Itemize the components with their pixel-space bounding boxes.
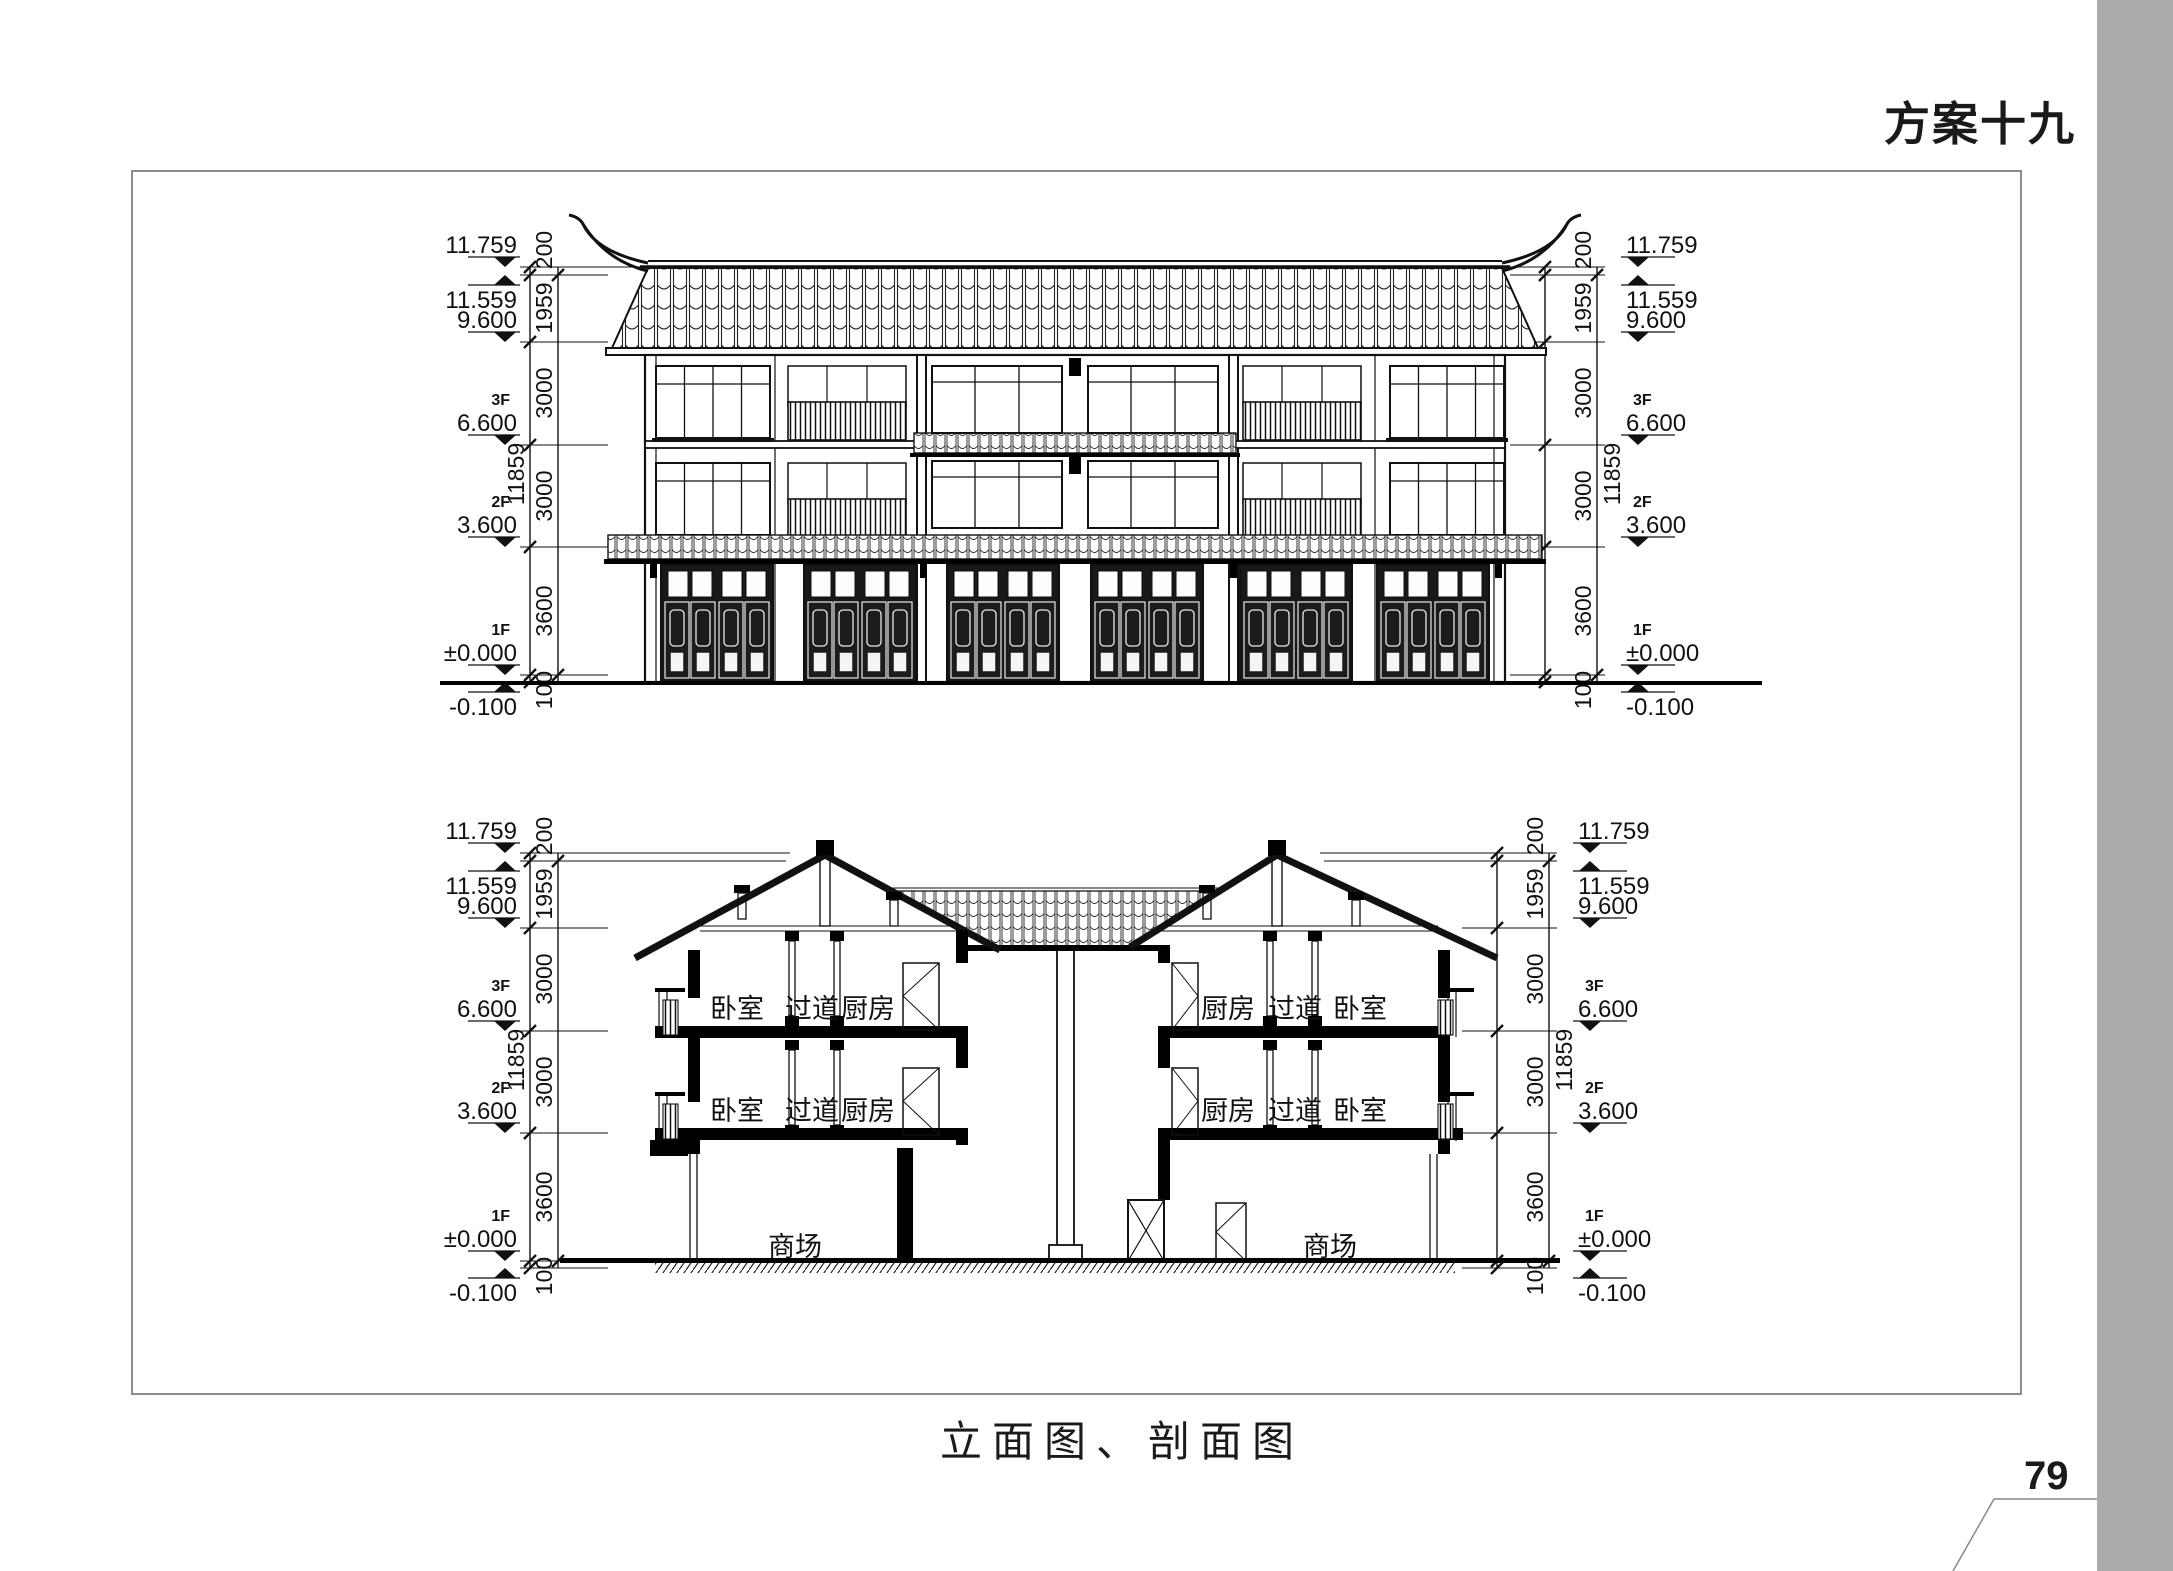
- room-label: 厨房: [841, 1096, 895, 1126]
- room-label: 过道: [1268, 994, 1322, 1024]
- room-label: 过道: [785, 1096, 839, 1126]
- room-label: 商场: [768, 1232, 822, 1262]
- room-label: 卧室: [710, 994, 764, 1024]
- room-label: 厨房: [1201, 994, 1255, 1024]
- architectural-drawings: 11.759 11.559 9.600 3F 6.600 2F 3.600 1F…: [0, 0, 2173, 1571]
- main-roof: [612, 268, 1538, 348]
- room-label: 厨房: [1201, 1096, 1255, 1126]
- ground-line: [440, 681, 1762, 685]
- center-column: [1057, 951, 1074, 1245]
- storefront-canopy: [608, 535, 1542, 559]
- room-label: 厨房: [841, 994, 895, 1024]
- page-corner-line: [1953, 1499, 2097, 1571]
- ground-line: [560, 1258, 1560, 1263]
- room-label: 卧室: [1333, 994, 1387, 1024]
- book-page: { "page": { "title": "方案十九", "caption": …: [0, 0, 2173, 1571]
- left-eave-curl: [569, 215, 648, 271]
- section-drawing: 卧室 过道 厨房 卧室 过道 厨房 商场: [444, 817, 1651, 1307]
- room-label: 卧室: [1333, 1096, 1387, 1126]
- room-label: 商场: [1303, 1232, 1357, 1262]
- room-label: 过道: [785, 994, 839, 1024]
- room-label: 过道: [1268, 1096, 1322, 1126]
- room-label: 卧室: [710, 1096, 764, 1126]
- elevation-drawing: [440, 215, 1762, 721]
- ground-hatch: [655, 1263, 1455, 1273]
